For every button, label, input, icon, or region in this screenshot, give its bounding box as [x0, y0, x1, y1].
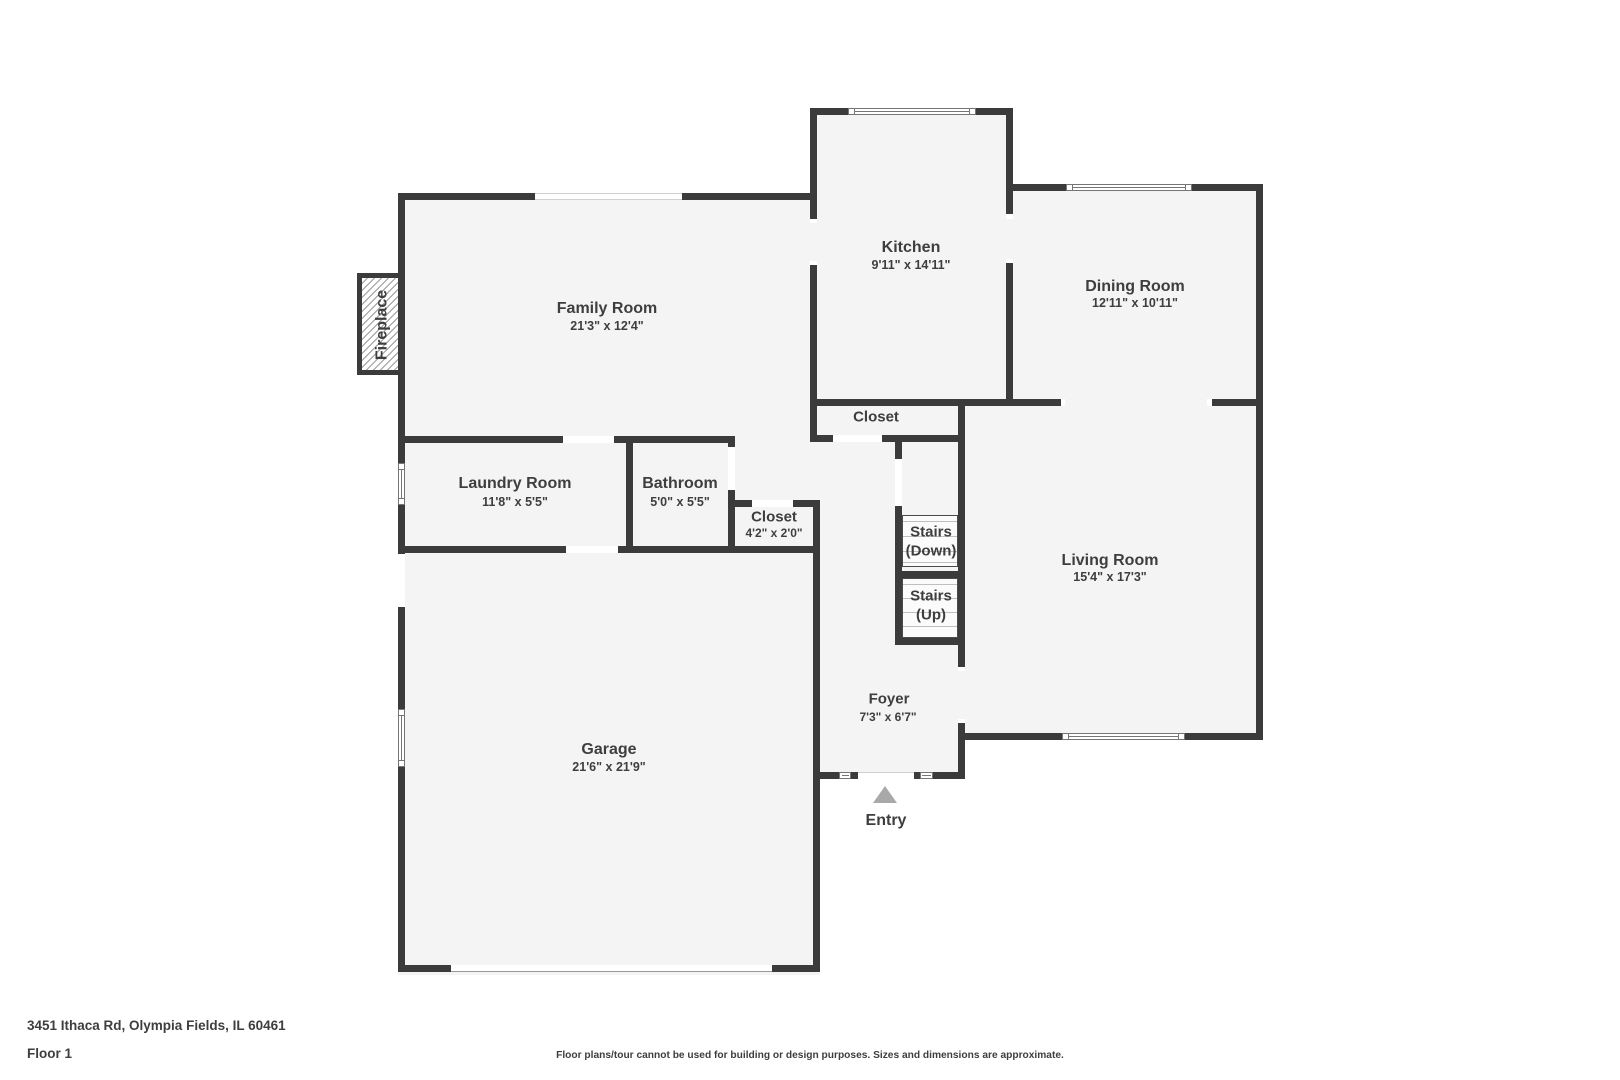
svg-text:Fireplace: Fireplace	[373, 289, 390, 359]
